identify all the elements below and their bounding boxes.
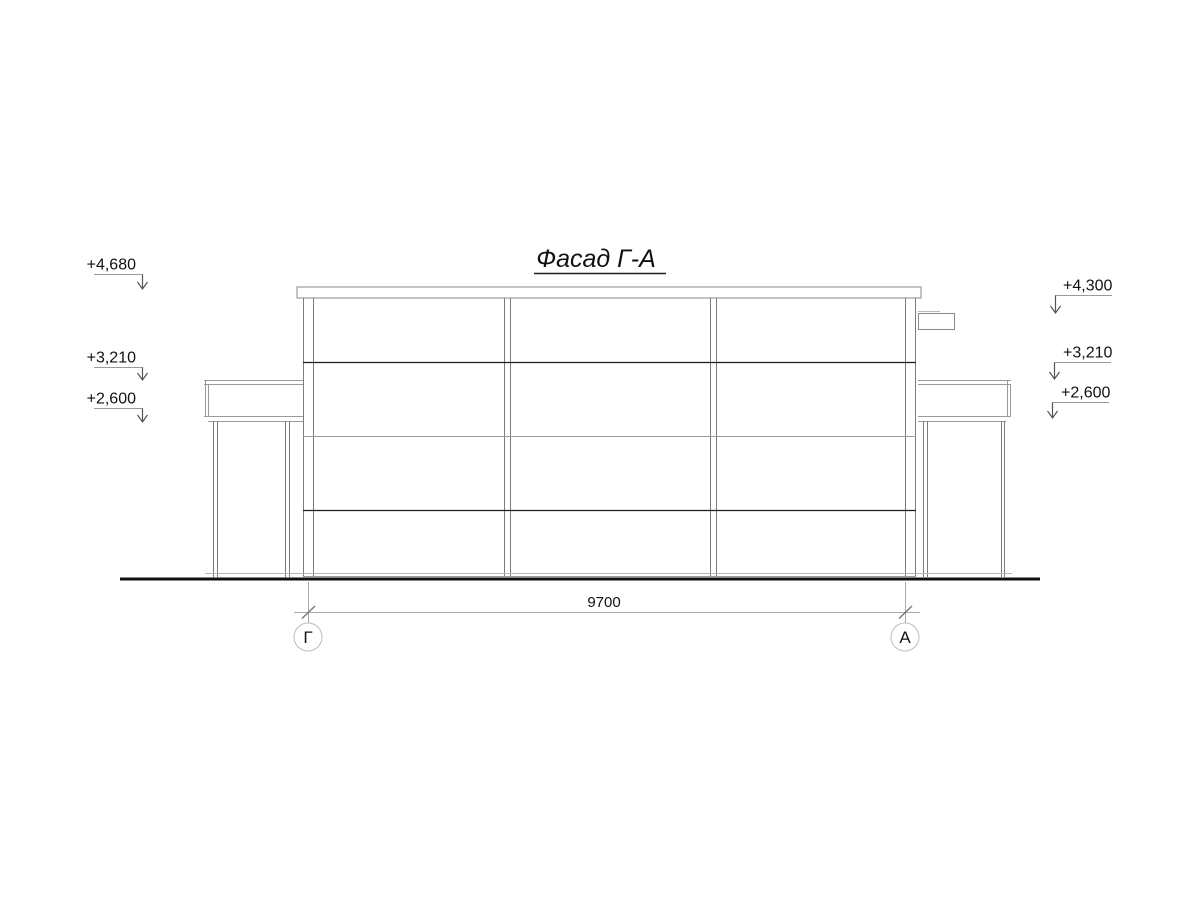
level-arrow-icon xyxy=(138,368,148,381)
level-arrow-icon xyxy=(138,275,148,290)
level-arrow-icon xyxy=(1048,403,1058,419)
level-mark: +2,600 xyxy=(1048,385,1111,419)
level-mark: +3,210 xyxy=(1050,345,1113,380)
level-label: +4,680 xyxy=(87,257,136,274)
level-mark: +3,210 xyxy=(87,350,148,381)
parapet-band xyxy=(297,287,921,298)
drawing-title: Фасад Г-А xyxy=(536,245,656,273)
facade-elevation-drawing: Фасад Г-А xyxy=(0,0,1200,900)
level-label: +2,600 xyxy=(87,391,136,408)
protrusion-box xyxy=(919,314,955,330)
drawing-title-block: Фасад Г-А xyxy=(534,245,666,274)
level-label: +4,300 xyxy=(1063,278,1112,295)
level-label: +2,600 xyxy=(1061,385,1110,402)
level-mark: +4,300 xyxy=(1051,278,1113,314)
level-label: +3,210 xyxy=(1063,345,1112,362)
elevation-marks-left: +4,680 +3,210 +2,600 xyxy=(87,257,148,423)
dimension-text: 9700 xyxy=(587,594,620,611)
level-arrow-icon xyxy=(1051,296,1061,314)
building-facade xyxy=(297,287,955,577)
grid-axis-left-label: Г xyxy=(303,628,312,647)
level-label: +3,210 xyxy=(87,350,136,367)
grid-axis-right-label: А xyxy=(899,628,911,647)
elevation-marks-right: +4,300 +3,210 +2,600 xyxy=(1048,278,1113,419)
level-arrow-icon xyxy=(1050,363,1060,380)
drawing-canvas: Фасад Г-А xyxy=(0,0,1200,900)
right-canopy xyxy=(918,380,1011,577)
level-arrow-icon xyxy=(138,409,148,423)
left-canopy xyxy=(204,380,303,577)
level-mark: +2,600 xyxy=(87,391,148,423)
dimension-block: 9700 Г А xyxy=(294,582,920,651)
level-mark: +4,680 xyxy=(87,257,148,290)
